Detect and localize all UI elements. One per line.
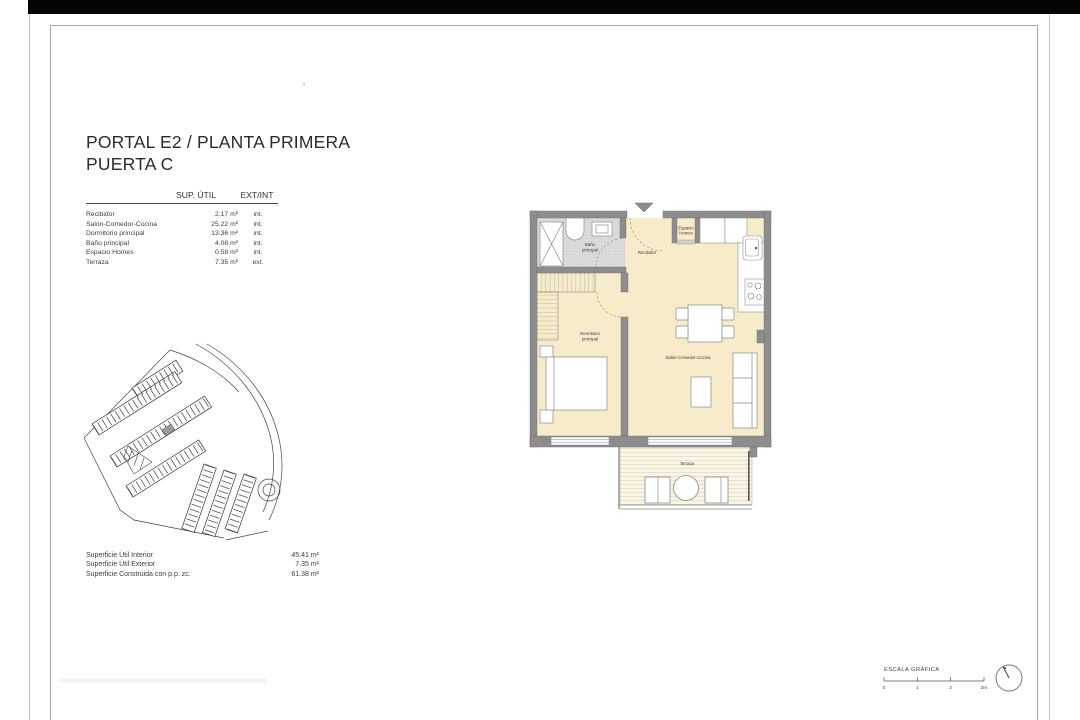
bed xyxy=(546,357,607,410)
site-roads xyxy=(84,344,282,540)
label-terraza: Terraza xyxy=(680,461,695,466)
stray-mark: ’ xyxy=(303,82,305,92)
room-area: 25.22 m² xyxy=(186,220,238,230)
summary-value: 7.35 m² xyxy=(295,560,319,569)
bath-sink xyxy=(566,218,584,240)
plan-sheet: ’ PORTAL E2 / PLANTA PRIMERA PUERTA C SU… xyxy=(0,0,1080,720)
svg-text:2: 2 xyxy=(949,685,952,691)
terrace-table xyxy=(674,476,699,501)
room-area: 13.36 m² xyxy=(186,229,238,239)
title-line-1: PORTAL E2 / PLANTA PRIMERA xyxy=(86,132,350,154)
surface-summary: Superficie Útil Interior 45.41 m² Superf… xyxy=(86,551,319,579)
summary-label: Superficie Útil Interior xyxy=(86,551,291,560)
label-bano: Baño xyxy=(585,242,596,247)
areas-table: SUP. ÚTIL EXT/INT Recibidor 2.17 m² int.… xyxy=(86,190,278,268)
table-row: Dormitorio principal 13.36 m² int. xyxy=(86,229,278,239)
summary-label: Superficie Útil Exterior xyxy=(86,560,295,569)
room-name: Salón-Comedor-Cocina xyxy=(86,220,186,230)
svg-text:principal: principal xyxy=(582,248,598,253)
svg-text:Homes: Homes xyxy=(679,231,693,236)
terrace-chair-left xyxy=(645,477,670,503)
terrace xyxy=(618,447,752,509)
faucet xyxy=(755,247,758,250)
scale-ticks: 0 1 2 3m xyxy=(883,685,988,691)
page-title: PORTAL E2 / PLANTA PRIMERA PUERTA C xyxy=(86,132,350,175)
room-name: Dormitorio principal xyxy=(86,229,186,239)
dining-chair xyxy=(676,326,688,338)
areas-table-header: SUP. ÚTIL EXT/INT xyxy=(86,190,278,203)
table-row: Salón-Comedor-Cocina 25.22 m² int. xyxy=(86,220,278,230)
room-type: int. xyxy=(238,220,278,230)
page-right-edge xyxy=(1049,14,1050,720)
table-row: Terraza 7.35 m² ext. xyxy=(86,258,278,268)
room-area: 2.17 m² xyxy=(186,210,238,220)
scale-bar-line xyxy=(884,677,984,681)
title-line-2: PUERTA C xyxy=(86,154,350,176)
label-salon: Salón-Comedor-Cocina xyxy=(666,355,712,360)
summary-row: Superficie Útil Interior 45.41 m² xyxy=(86,551,319,560)
svg-text:3m: 3m xyxy=(981,685,988,691)
room-type: int. xyxy=(238,248,278,258)
room-type: int. xyxy=(238,229,278,239)
dining-chair xyxy=(722,326,734,338)
dining-chair xyxy=(722,308,734,320)
room-type: int. xyxy=(238,239,278,249)
terrace-glass-rail xyxy=(748,451,750,501)
svg-text:principal: principal xyxy=(582,337,598,342)
espacio-homes-closet xyxy=(677,240,695,244)
page-left-edge xyxy=(29,14,30,720)
room-type: ext. xyxy=(238,258,278,268)
summary-row: Superficie Construida con p.p. zc. 61.38… xyxy=(86,570,319,579)
table-row: Espacio Homes 0.58 m² int. xyxy=(86,248,278,258)
kitchen-counter xyxy=(700,218,725,243)
toilet xyxy=(592,222,612,236)
footer-divider xyxy=(60,678,267,683)
summary-label: Superficie Construida con p.p. zc. xyxy=(86,570,291,579)
summary-value: 45.41 m² xyxy=(291,551,319,560)
summary-value: 61.38 m² xyxy=(291,570,319,579)
room-name: Baño principal xyxy=(86,239,186,249)
label-recibidor: Recibidor xyxy=(638,250,657,255)
terrace-railing xyxy=(620,505,752,509)
terrace-left-wall xyxy=(618,447,620,509)
svg-text:0: 0 xyxy=(883,685,886,691)
room-type: int. xyxy=(238,210,278,220)
coffee-table xyxy=(691,377,711,407)
header-rule xyxy=(86,203,278,204)
dining-table xyxy=(688,305,722,342)
dining-chair xyxy=(676,308,688,320)
svg-text:1: 1 xyxy=(916,685,919,691)
north-arrow-icon xyxy=(992,661,1026,695)
scale-label: ESCALA GRÁFICA xyxy=(884,666,940,673)
room-name: Terraza xyxy=(86,258,186,268)
room-area: 0.58 m² xyxy=(186,248,238,258)
site-buildings xyxy=(92,360,256,536)
apartment-floor-plan: Baño principal Recibidor Espacio Homes D… xyxy=(524,196,776,518)
room-name: Espacio Homes xyxy=(86,248,186,258)
table-row: Baño principal 4.08 m² int. xyxy=(86,239,278,249)
col-header-ext-int: EXT/INT xyxy=(241,190,274,200)
nightstand xyxy=(540,346,553,357)
summary-row: Superficie Útil Exterior 7.35 m² xyxy=(86,560,319,569)
graphic-scale: ESCALA GRÁFICA 0 1 2 3m xyxy=(878,662,1008,696)
entrance-arrow-icon xyxy=(635,203,653,212)
terrace-chair-right xyxy=(705,477,728,503)
site-location-map xyxy=(76,344,288,544)
col-header-sup-util: SUP. ÚTIL xyxy=(176,190,216,200)
wall-pillar xyxy=(757,330,764,343)
room-area: 7.35 m² xyxy=(186,258,238,268)
stove xyxy=(745,279,764,305)
label-dormitorio: Dormitorio xyxy=(580,331,600,336)
nightstand xyxy=(540,410,553,423)
room-area: 4.08 m² xyxy=(186,239,238,249)
table-row: Recibidor 2.17 m² int. xyxy=(86,210,278,220)
top-black-bar xyxy=(28,0,1080,14)
sofa xyxy=(733,353,757,428)
room-name: Recibidor xyxy=(86,210,186,220)
